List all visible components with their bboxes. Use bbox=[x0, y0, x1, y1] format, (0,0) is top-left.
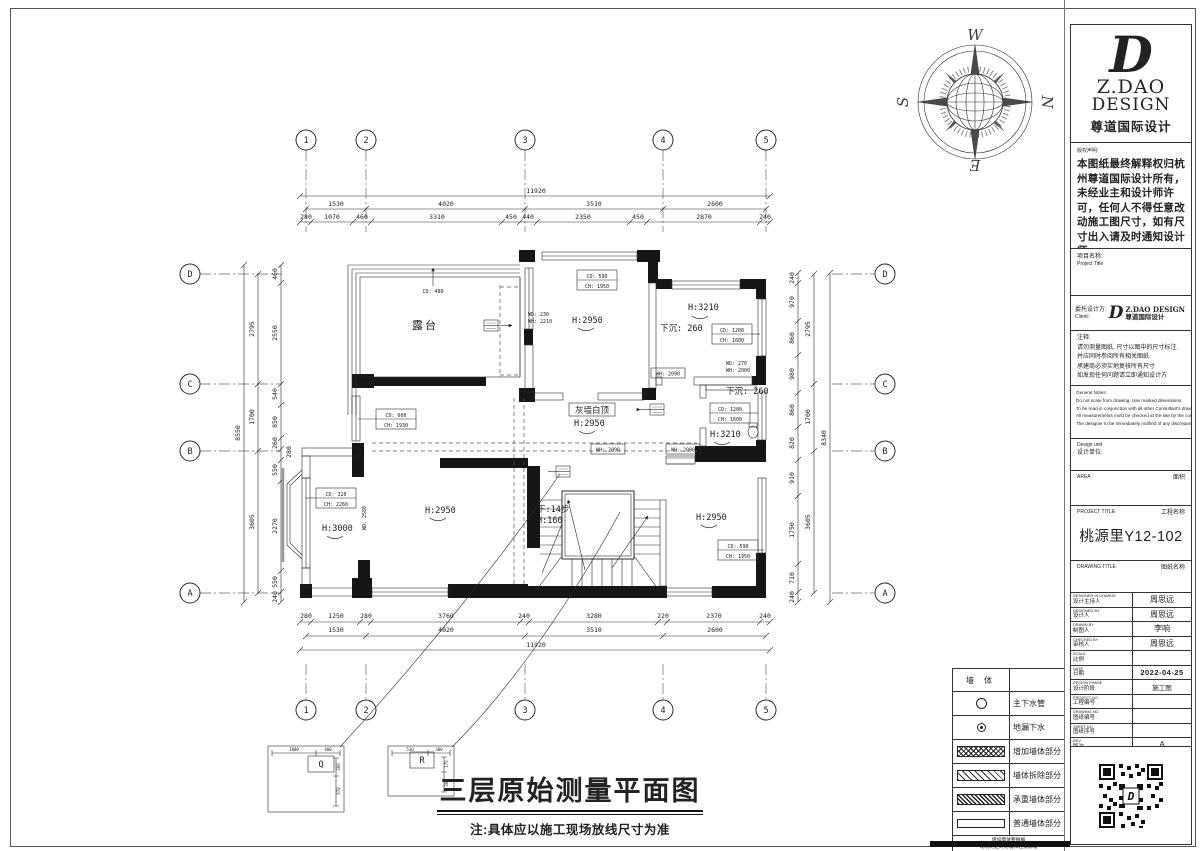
dim-label: 2870 bbox=[696, 213, 712, 221]
annotation-text: WH: 2210 bbox=[528, 319, 552, 325]
toilet-icon bbox=[748, 423, 758, 438]
dim-label: 11920 bbox=[526, 641, 546, 649]
room-label: H:2950 bbox=[696, 513, 727, 523]
legend-header: 墙 体 bbox=[953, 669, 1010, 691]
added-wall-swatch bbox=[957, 746, 1005, 757]
opening-label: WH: 2090 bbox=[666, 444, 700, 454]
dim-label: 980 bbox=[788, 368, 796, 380]
row-value: 周思远 bbox=[1133, 608, 1191, 622]
sheet-divider-line bbox=[1064, 0, 1065, 851]
project-title-cn: 工程名称 bbox=[1161, 509, 1185, 517]
annotation-box: CD: 1200 CH: 1600 bbox=[710, 403, 758, 423]
legend-item-label: 墙体拆除部分 bbox=[1010, 764, 1064, 787]
detail-dim: 400 bbox=[324, 747, 332, 752]
grid-bubbles: 1 2 3 4 5 1 2 3 4 5 A B C D A B C D bbox=[180, 130, 895, 720]
grid-bubble: D bbox=[187, 270, 192, 280]
copyright-section: 版权声明: 本图纸最终解释权归杭州尊道国际设计所有，未经业主和设计师许可，任何人… bbox=[1071, 143, 1191, 249]
terrace-railing bbox=[348, 265, 520, 415]
row-value: A bbox=[1133, 738, 1191, 747]
legend-bottom-bar bbox=[930, 841, 1070, 847]
grid-bubble: 4 bbox=[660, 136, 665, 146]
grid-bubble: 3 bbox=[522, 706, 527, 716]
dim-label: 910 bbox=[788, 472, 796, 484]
dim-label: 710 bbox=[788, 572, 796, 584]
dim-label: 550 bbox=[271, 576, 279, 588]
qr-code: D bbox=[1099, 764, 1163, 828]
compass-north-label: N bbox=[1038, 94, 1056, 109]
grid-bubble: 5 bbox=[763, 136, 768, 146]
grid-bubble: 1 bbox=[303, 706, 308, 716]
annotation-text: CD: 1200 bbox=[718, 407, 742, 413]
dim-label: 850 bbox=[271, 416, 279, 428]
dim-label: 440 bbox=[522, 213, 534, 221]
grid-bubble: 3 bbox=[522, 136, 527, 146]
room-labels: 露台 H:2950 H:3210 下沉: 260 下沉: 260 H:3210 … bbox=[322, 303, 769, 539]
dim-label: 1530 bbox=[328, 626, 344, 634]
annotation-text: WH: 2090 bbox=[671, 448, 695, 454]
row-value: 周思远 bbox=[1133, 637, 1191, 651]
compass-rose: W S N E bbox=[894, 26, 1056, 174]
table-row: PROJECT NO工程编号 bbox=[1071, 695, 1191, 710]
drawing-title-cn: 图纸名称 bbox=[1161, 564, 1185, 572]
general-note-line: The designer to be immediately notified … bbox=[1076, 420, 1186, 428]
table-row: DRAWN BY制图人 李响 bbox=[1071, 622, 1191, 637]
dim-label: 2370 bbox=[706, 612, 722, 620]
dim-label: 240 bbox=[759, 612, 771, 620]
area-section: AREA 面积 bbox=[1071, 471, 1191, 506]
dim-label: 3760 bbox=[438, 612, 454, 620]
drawing-sheet: W S N E 1 2 3 4 5 1 2 3 4 5 A B C D A B … bbox=[0, 0, 1200, 851]
dim-label: 240 bbox=[788, 591, 796, 603]
project-title-section: PROJECT TITLE 工程名称 桃源里Y12-102 bbox=[1071, 506, 1191, 561]
logo-line3: 尊道国际设计 bbox=[1090, 116, 1171, 135]
dim-label: 240 bbox=[271, 591, 279, 603]
room-label-hall-finish: 灰墙白顶 bbox=[575, 405, 610, 416]
dim-label: 280 bbox=[300, 612, 312, 620]
client-logo-line1: Z.DAO DESIGN bbox=[1125, 306, 1185, 314]
note-line: 请勿测量图纸, 尺寸以图中的尺寸标注. bbox=[1077, 344, 1185, 354]
annotation-text: WD: 270 bbox=[726, 361, 747, 367]
project-name-label-en: Project Title bbox=[1077, 261, 1185, 268]
dim-label: 3605 bbox=[248, 514, 256, 530]
dim-label: 2600 bbox=[707, 200, 723, 208]
table-row: CHECKED BY审核人 周思远 bbox=[1071, 637, 1191, 652]
note-line: 并应同时参阅所有相关图纸. bbox=[1077, 353, 1185, 363]
row-label-cn: 设计阶段 bbox=[1073, 686, 1130, 693]
legend-item-label: 承重墙体部分 bbox=[1010, 788, 1064, 811]
legend-item-label: 主下水管 bbox=[1010, 692, 1064, 715]
dim-label: 2270 bbox=[271, 518, 279, 534]
area-label-cn: 面积 bbox=[1173, 474, 1185, 482]
grid-bubble: 2 bbox=[363, 136, 368, 146]
annotation-text: CH: 1600 bbox=[720, 338, 744, 344]
legend-table: 墙 体 主下水管 地漏下水 增加墙体部分 墙体拆除部分 承重墙体部分 普通墙体部… bbox=[952, 668, 1065, 851]
room-label: H:3210 bbox=[710, 430, 741, 440]
dim-label: 240 bbox=[788, 272, 796, 284]
drawing-title-text: 三层原始测量平面图 bbox=[437, 775, 703, 807]
dim-label: 8340 bbox=[820, 430, 828, 446]
dim-label: 3605 bbox=[804, 514, 812, 530]
qr-code-section: D bbox=[1071, 747, 1191, 844]
annotation-text: WD: 230 bbox=[528, 312, 549, 318]
annotation-text: CH: 1950 bbox=[585, 284, 609, 290]
logo-d-glyph: D bbox=[1109, 33, 1152, 77]
table-row: DATE日期 2022-04-25 bbox=[1071, 666, 1191, 681]
row-label-cn: 设计主持人 bbox=[1073, 599, 1130, 606]
dim-label: 1250 bbox=[328, 612, 344, 620]
legend-item-label: 地漏下水 bbox=[1010, 716, 1064, 739]
design-unit-section: Design unit 设计单位: bbox=[1071, 439, 1191, 471]
dim-label: 2600 bbox=[707, 626, 723, 634]
design-unit-cn: 设计单位: bbox=[1077, 449, 1185, 457]
table-row: DESIGN PHASE设计阶段 施工图 bbox=[1071, 680, 1191, 695]
title-rule bbox=[437, 814, 703, 815]
room-label: H:2950 bbox=[572, 316, 603, 326]
client-logo-d: D bbox=[1109, 303, 1124, 323]
grid-bubble: D bbox=[882, 270, 887, 280]
mini-callout bbox=[484, 320, 512, 331]
dim-label: 8550 bbox=[234, 425, 242, 441]
annotation-text: CD: 1200 bbox=[720, 328, 744, 334]
dim-label: 280 bbox=[285, 446, 293, 458]
note-line: 如发现任何问题请立即通知设计方 bbox=[1077, 372, 1185, 382]
annotation-text: CD: 590 bbox=[727, 544, 748, 550]
dim-label: 1750 bbox=[788, 522, 796, 538]
note-line: 承建商必须实地复核所有尺寸 bbox=[1077, 363, 1185, 373]
annotation-text: WH: 2090 bbox=[656, 372, 680, 378]
table-row: SHEET NO图纸序号 bbox=[1071, 724, 1191, 739]
dim-label: 460 bbox=[356, 213, 368, 221]
dim-label: 280 bbox=[360, 612, 372, 620]
client-section: 委托设计方: Client: D Z.DAO DESIGN 尊道国际设计 bbox=[1071, 296, 1191, 331]
dim-label: 1700 bbox=[804, 409, 812, 425]
demolished-wall-swatch bbox=[957, 770, 1005, 781]
design-unit-en: Design unit bbox=[1077, 442, 1185, 449]
title-block: D Z.DAO DESIGN 尊道国际设计 版权声明: 本图纸最终解释权归杭州尊… bbox=[1068, 8, 1194, 845]
client-logo-line2: 尊道国际设计 bbox=[1125, 314, 1185, 321]
dim-label: 860 bbox=[788, 332, 796, 344]
opening-label: WH: 2090 bbox=[591, 444, 625, 454]
row-value: 李响 bbox=[1133, 622, 1191, 636]
annotation-box: CD: 320 CH: 2260 bbox=[305, 488, 356, 508]
dim-label: 550 bbox=[271, 464, 279, 476]
row-value bbox=[1133, 724, 1191, 738]
row-label-cn: 图纸编号 bbox=[1073, 715, 1130, 722]
legend-item-label: 增加墙体部分 bbox=[1010, 740, 1064, 763]
floor-drain-icon bbox=[977, 723, 986, 732]
dim-label: 820 bbox=[788, 437, 796, 449]
table-row: DESIGNER IN CHARGE设计主持人 周思远 bbox=[1071, 593, 1191, 608]
normal-wall-swatch bbox=[957, 819, 1005, 828]
grid-bubble: C bbox=[882, 380, 887, 390]
annotation-box: CD: 1200 CH: 1600 bbox=[712, 324, 760, 344]
dim-label: 450 bbox=[505, 213, 517, 221]
room-label-terrace: 露台 bbox=[412, 318, 438, 332]
logo-line1: Z.DAO bbox=[1097, 77, 1165, 97]
row-label-cn: 日期 bbox=[1073, 671, 1130, 678]
client-label-en: Client: bbox=[1075, 314, 1107, 321]
annotation-text: CH: 2260 bbox=[324, 502, 348, 508]
detail-leaders bbox=[340, 474, 620, 747]
annotation-text: CD: 320 bbox=[325, 492, 346, 498]
grid-bubble: B bbox=[187, 447, 192, 457]
annotation-box: CD: 590 CH: 1950 bbox=[577, 270, 617, 290]
dim-label: 1530 bbox=[328, 200, 344, 208]
dim-label: 240 bbox=[759, 213, 771, 221]
dim-label: 2795 bbox=[804, 321, 812, 337]
dim-label: 3510 bbox=[586, 626, 602, 634]
annotation-text: CH: 1600 bbox=[718, 417, 742, 423]
row-label-cn: 图纸序号 bbox=[1073, 729, 1130, 736]
general-note-line: Do not scale from drawing. Use marked di… bbox=[1076, 397, 1186, 405]
load-bearing-wall-swatch bbox=[957, 794, 1005, 805]
company-logo: D Z.DAO DESIGN 尊道国际设计 bbox=[1071, 25, 1191, 143]
compass-west-label: W bbox=[967, 26, 984, 44]
general-notes-section: General Notes: Do not scale from drawing… bbox=[1071, 386, 1191, 439]
annotation-text: WH: 2090 bbox=[596, 448, 620, 454]
row-value bbox=[1133, 695, 1191, 709]
dim-label: 2350 bbox=[575, 213, 591, 221]
stair-steps-label: 下:14步 bbox=[537, 505, 569, 515]
annotation-text: CD: 600 bbox=[385, 413, 406, 419]
detail-dim: 570 bbox=[336, 787, 341, 795]
project-title-en: PROJECT TITLE bbox=[1077, 509, 1115, 517]
row-label-cn: 设计人 bbox=[1073, 613, 1130, 620]
client-logo: D Z.DAO DESIGN 尊道国际设计 bbox=[1109, 303, 1185, 323]
project-title-value: 桃源里Y12-102 bbox=[1077, 525, 1185, 546]
room-label: 下沉: 260 bbox=[660, 324, 703, 334]
grid-bubble: C bbox=[187, 380, 192, 390]
grid-bubble: A bbox=[187, 589, 192, 599]
row-label-cn: 制图人 bbox=[1073, 628, 1130, 635]
grid-bubble: 1 bbox=[303, 136, 308, 146]
dim-label: 4020 bbox=[438, 200, 454, 208]
main-drain-icon bbox=[976, 698, 987, 709]
dim-label: 4020 bbox=[438, 626, 454, 634]
compass-south-label: S bbox=[894, 97, 912, 107]
compass-globe bbox=[947, 74, 1003, 130]
dim-label: 3310 bbox=[429, 213, 445, 221]
general-notes-label: General Notes: bbox=[1076, 389, 1186, 397]
room-label: H:2950 bbox=[574, 419, 605, 429]
dim-label: 1700 bbox=[248, 409, 256, 425]
row-value bbox=[1133, 651, 1191, 665]
annotation-text: CD: 590 bbox=[586, 274, 607, 280]
copyright-label: 版权声明: bbox=[1077, 147, 1185, 154]
grid-bubble: 4 bbox=[660, 706, 665, 716]
dim-label: 2550 bbox=[271, 325, 279, 341]
detail-dim: 300 bbox=[435, 747, 443, 752]
table-row: SCALE比例 bbox=[1071, 651, 1191, 666]
general-note-line: To be read in conjunction with all other… bbox=[1076, 405, 1186, 413]
dim-label: 240 bbox=[518, 612, 530, 620]
dim-label: 450 bbox=[632, 213, 644, 221]
drawing-title-block: 三层原始测量平面图 注:具体应以施工现场放线尺寸为准 bbox=[437, 775, 703, 838]
floor-plan-canvas: W S N E 1 2 3 4 5 1 2 3 4 5 A B C D A B … bbox=[0, 0, 1070, 851]
dim-label: 260 bbox=[271, 437, 279, 449]
drawing-title-en: DRAWING TITLE bbox=[1077, 564, 1116, 571]
grid-bubble: 5 bbox=[763, 706, 768, 716]
mini-callout bbox=[640, 404, 664, 415]
row-value: 施工图 bbox=[1133, 680, 1191, 694]
dim-label: 220 bbox=[657, 612, 669, 620]
detail-box-q: 1000 400 200 570 Q bbox=[268, 746, 344, 812]
room-label: H:3210 bbox=[688, 303, 719, 313]
annotation-text: WD: 2580 bbox=[362, 506, 368, 530]
grid-bubble: B bbox=[882, 447, 887, 457]
drawing-title-section: DRAWING TITLE 图纸名称 bbox=[1071, 561, 1191, 593]
detail-dim: 200 bbox=[336, 763, 341, 771]
detail-dim: 170 bbox=[444, 760, 449, 768]
dim-label: 2795 bbox=[248, 321, 256, 337]
room-label: H:2950 bbox=[425, 506, 456, 516]
dim-label: 11920 bbox=[526, 187, 546, 195]
room-label: 下沉: 260 bbox=[726, 387, 769, 397]
dim-label: 3280 bbox=[586, 612, 602, 620]
project-name-section: 项目名称: Project Title bbox=[1071, 249, 1191, 296]
bay-window bbox=[283, 468, 302, 562]
compass-east-label: E bbox=[969, 156, 981, 174]
signature-table: DESIGNER IN CHARGE设计主持人 周思远 DESIGNED BY设… bbox=[1071, 593, 1191, 747]
copyright-text: 本图纸最终解释权归杭州尊道国际设计所有，未经业主和设计师许可，任何人不得任意改动… bbox=[1077, 157, 1185, 249]
project-name-label: 项目名称: bbox=[1077, 253, 1185, 261]
dim-label: 3510 bbox=[586, 200, 602, 208]
row-value: 2022-04-25 bbox=[1133, 666, 1191, 680]
row-label-cn: 工程编号 bbox=[1073, 700, 1130, 707]
dim-label: 1070 bbox=[324, 213, 340, 221]
row-value: 周思远 bbox=[1133, 593, 1191, 607]
dim-label: 460 bbox=[271, 268, 279, 280]
dim-label: 280 bbox=[300, 213, 312, 221]
legend-item-label: 普通墙体部分 bbox=[1010, 812, 1064, 835]
general-note-line: All measurements must be checked at the … bbox=[1076, 412, 1186, 420]
grid-bubble: 2 bbox=[363, 706, 368, 716]
area-label-en: AREA bbox=[1077, 474, 1091, 481]
row-label-cn: 审核人 bbox=[1073, 642, 1130, 649]
notes-section: 注释: 请勿测量图纸, 尺寸以图中的尺寸标注. 并应同时参阅所有相关图纸. 承建… bbox=[1071, 331, 1191, 386]
detail-dim: 530 bbox=[406, 747, 414, 752]
detail-label-q: Q bbox=[318, 760, 323, 770]
logo-line2: DESIGN bbox=[1092, 97, 1171, 114]
table-row: DRAWING NO图纸编号 bbox=[1071, 709, 1191, 724]
svg-text:D: D bbox=[1127, 790, 1135, 803]
stair-height-label: H:160 bbox=[537, 516, 563, 526]
dim-label: 970 bbox=[788, 296, 796, 308]
annotation-box: CD: 600 CH: 1930 bbox=[358, 409, 416, 429]
table-row: DESIGNED BY设计人 周思远 bbox=[1071, 608, 1191, 623]
grid-bubble: A bbox=[882, 589, 887, 599]
room-label: H:3000 bbox=[322, 524, 353, 534]
dim-label: 860 bbox=[788, 404, 796, 416]
detail-dim: 1000 bbox=[289, 747, 299, 752]
drawing-title-note: 注:具体应以施工现场放线尺寸为准 bbox=[437, 819, 703, 838]
annotation-cd480: CD: 480 bbox=[422, 289, 443, 295]
detail-label-r: R bbox=[419, 756, 425, 766]
annotation-text: CH: 1930 bbox=[384, 423, 408, 429]
client-label: 委托设计方: bbox=[1075, 306, 1107, 314]
table-row: REV版次 A bbox=[1071, 738, 1191, 747]
dim-label: 540 bbox=[271, 388, 279, 400]
row-value bbox=[1133, 709, 1191, 723]
annotation-text: CH: 1950 bbox=[726, 554, 750, 560]
title-rule bbox=[437, 810, 703, 812]
row-label-cn: 比例 bbox=[1073, 657, 1130, 664]
annotation-text: WH: 2000 bbox=[726, 368, 750, 374]
notes-label: 注释: bbox=[1077, 334, 1185, 344]
